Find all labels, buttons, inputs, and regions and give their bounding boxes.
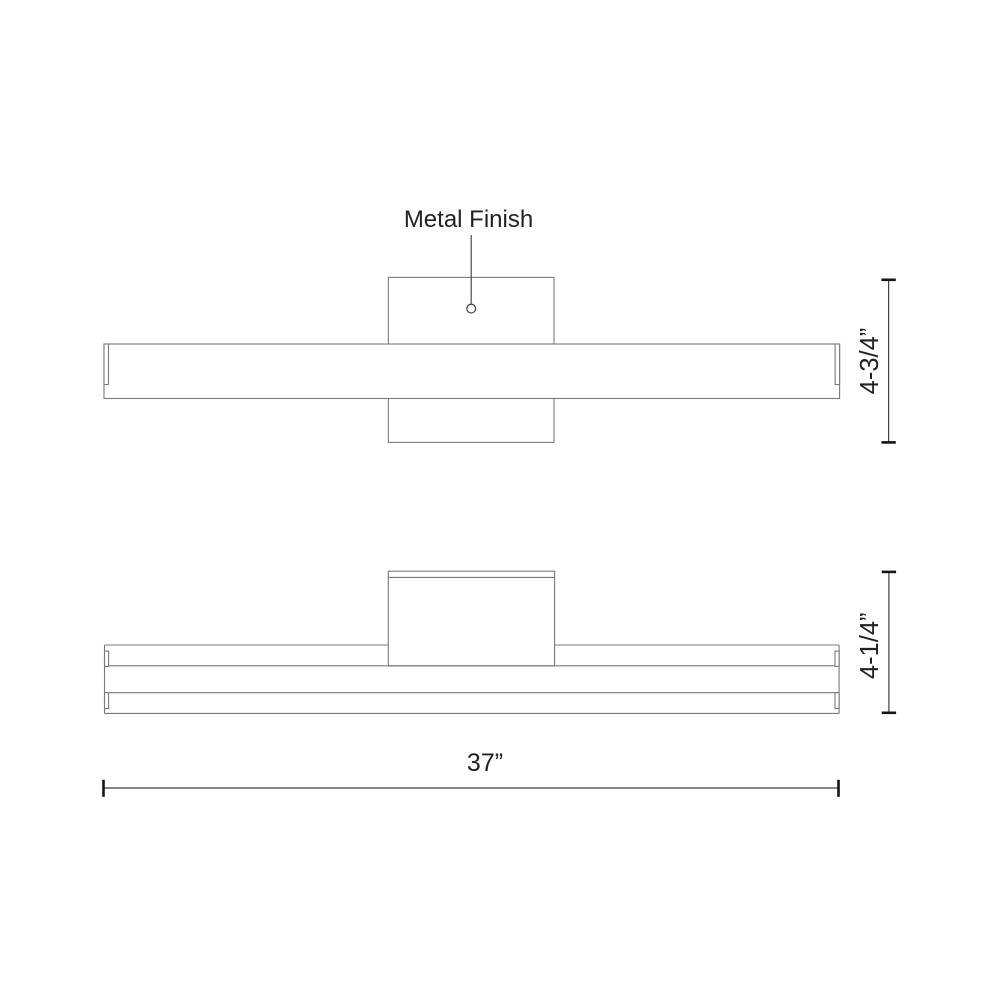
svg-text:Metal Finish: Metal Finish (404, 206, 533, 233)
svg-text:4-3/4”: 4-3/4” (856, 328, 884, 395)
svg-text:4-1/4”: 4-1/4” (856, 612, 884, 679)
svg-text:37”: 37” (467, 749, 503, 777)
